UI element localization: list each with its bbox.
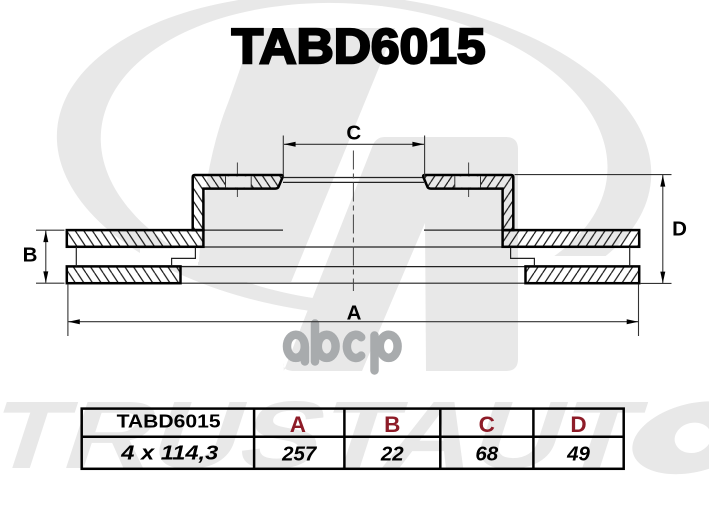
svg-text:TRUSTAUT: TRUSTAUT	[0, 381, 656, 488]
svg-text:C: C	[479, 412, 495, 437]
svg-text:68: 68	[475, 443, 498, 466]
svg-text:A: A	[347, 301, 362, 324]
svg-text:A: A	[290, 412, 306, 437]
svg-text:257: 257	[281, 443, 318, 466]
svg-text:49: 49	[566, 443, 590, 466]
svg-text:22: 22	[380, 443, 404, 466]
svg-text:TABD6015: TABD6015	[117, 411, 221, 432]
svg-text:D: D	[672, 217, 687, 240]
svg-text:B: B	[23, 244, 38, 267]
svg-text:C: C	[346, 121, 361, 144]
svg-text:D: D	[570, 412, 586, 437]
svg-text:B: B	[384, 412, 400, 437]
svg-text:TABD6015: TABD6015	[232, 19, 486, 74]
svg-text:4 x 114,3: 4 x 114,3	[120, 442, 219, 465]
